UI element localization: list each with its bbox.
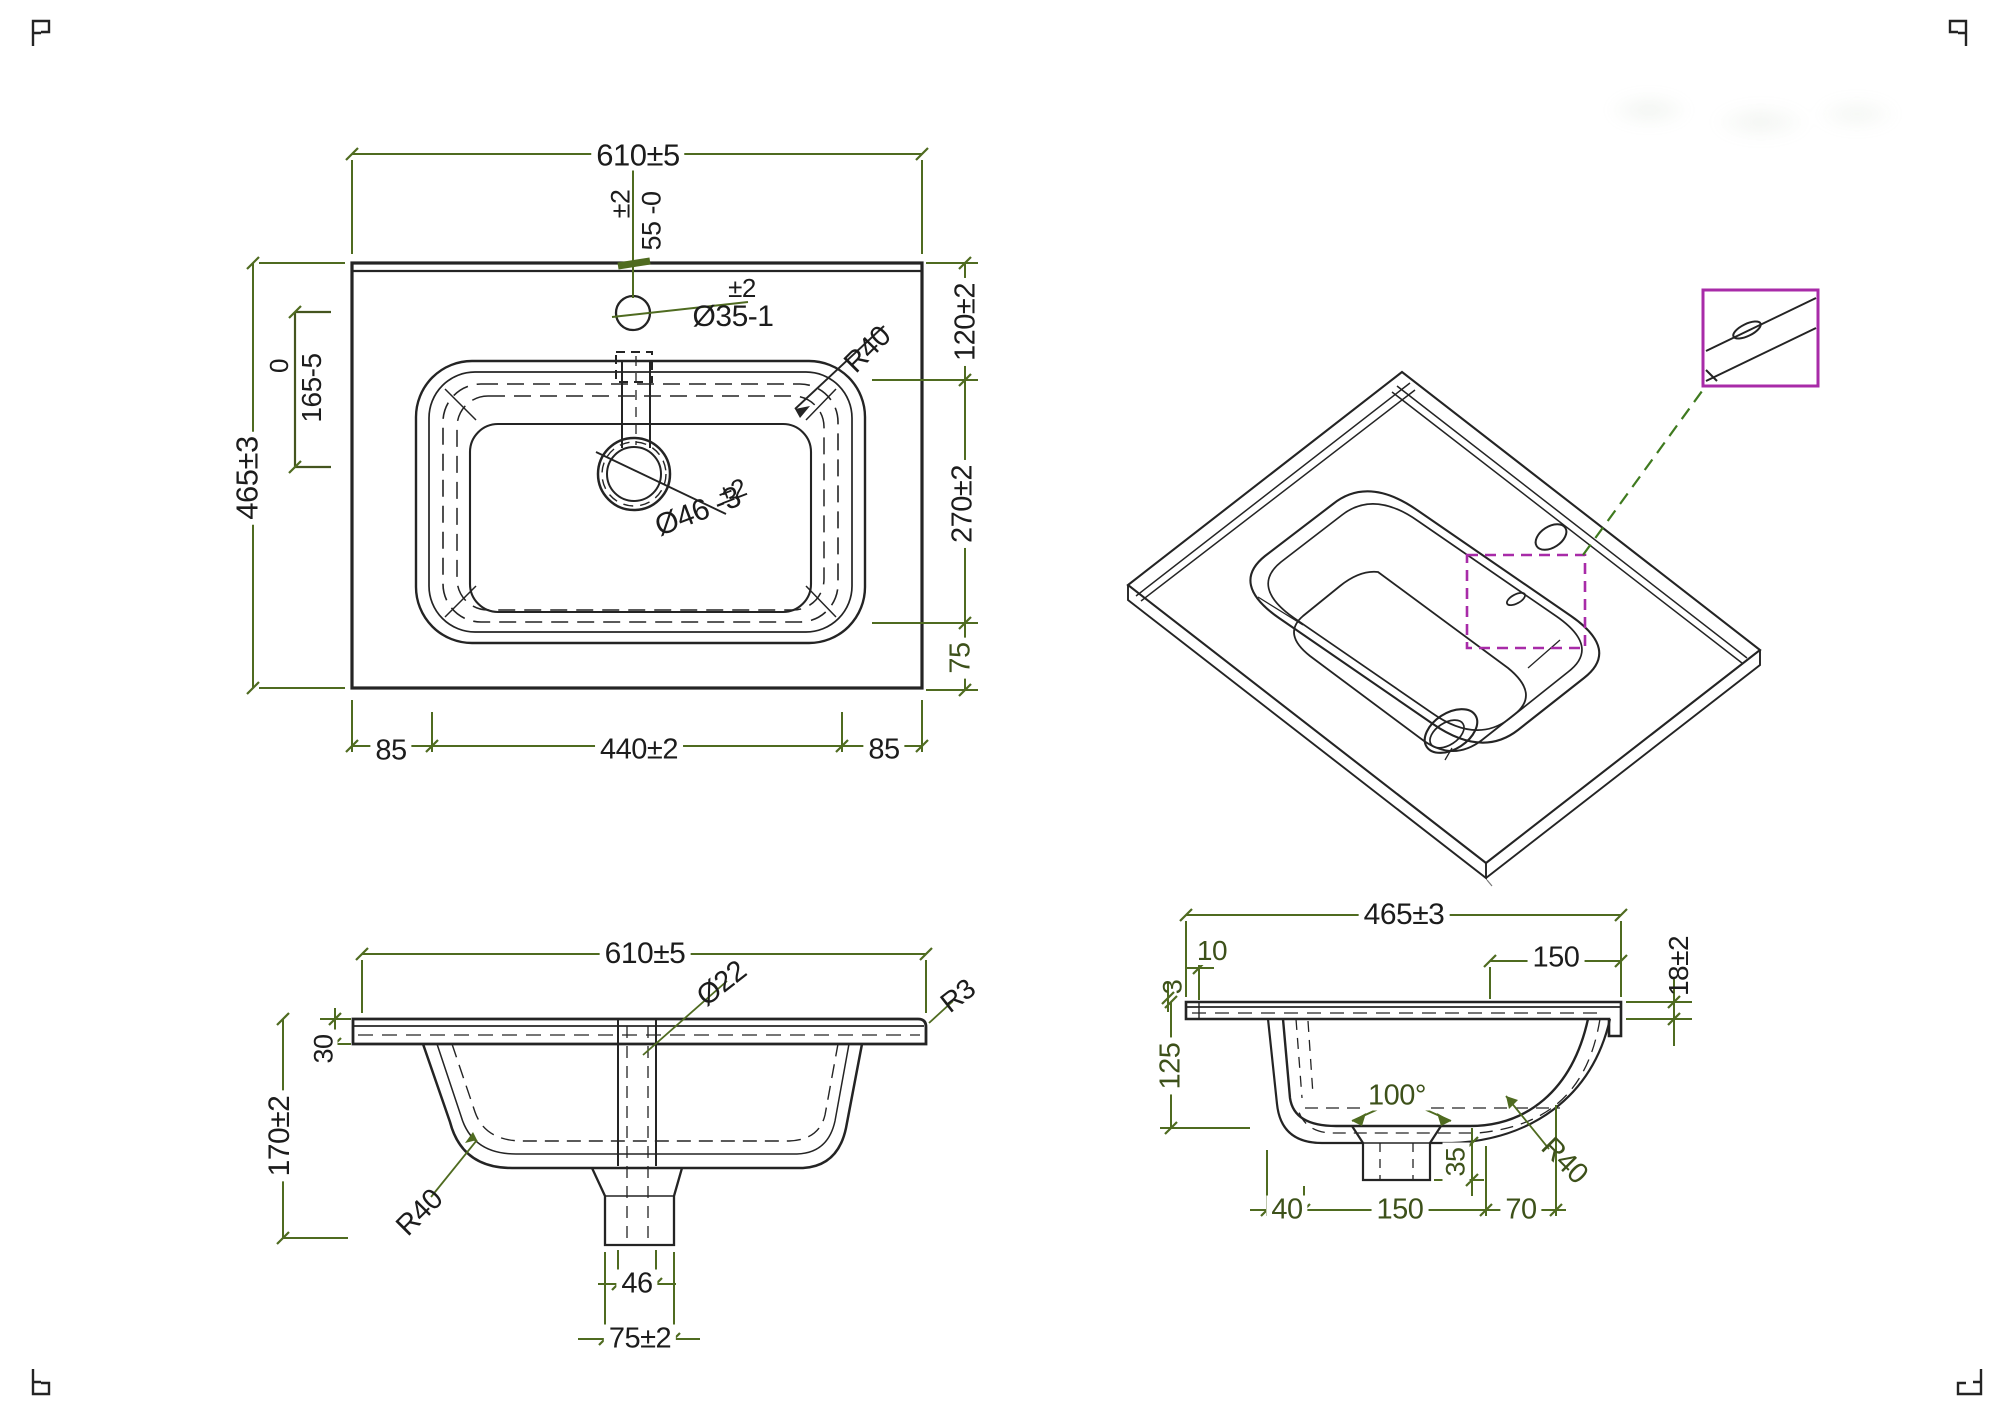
- plan-dim-height: 465±3: [232, 431, 263, 524]
- front-dim-height: 170±2: [265, 1091, 295, 1182]
- side-bottom-left-dim: 40: [1266, 1196, 1307, 1225]
- side-front-flat-dim: 150: [1528, 944, 1585, 973]
- plan-countertop-outline: [352, 263, 922, 688]
- front-dim-width: 610±5: [600, 939, 691, 969]
- plan-dim-width: 610±5: [591, 140, 684, 171]
- plan-dim-right-mid: 270±2: [949, 460, 978, 548]
- corner-marks: [33, 21, 1981, 1394]
- side-view-linework: [1160, 909, 1692, 1216]
- plan-basin-depth-label: 165-5: [298, 353, 326, 422]
- iso-overflow-slot: [1505, 590, 1527, 607]
- front-drain-inner-dim: 46: [616, 1270, 657, 1299]
- drawing-canvas: [0, 0, 1999, 1413]
- iso-countertop: [1128, 372, 1760, 863]
- plan-dim-right-top: 120±2: [952, 278, 981, 366]
- plan-dim-bottom-right: 85: [863, 736, 904, 765]
- detail-overflow-slot: [1731, 318, 1763, 342]
- plan-faucet-offset-tol: ±2: [608, 190, 635, 219]
- overflow-highlight-box: [1467, 555, 1585, 648]
- side-bottom-center-dim: 150: [1372, 1196, 1429, 1225]
- plan-dim-bottom-left: 85: [370, 737, 411, 766]
- side-dim-height: 125: [1157, 1038, 1186, 1095]
- plan-basin-depth-upper-tol: 0: [266, 359, 292, 373]
- side-lip-dim: 3: [1160, 980, 1187, 995]
- front-view-linework: [277, 948, 953, 1346]
- watermark: [1585, 78, 1905, 158]
- corner-mark-top-right: [1950, 21, 1966, 46]
- detail-box: [1703, 290, 1818, 386]
- plan-basin-rim-outer: [416, 361, 865, 643]
- side-basin-wall: [1283, 1019, 1588, 1126]
- plan-drain-hole: [598, 438, 670, 510]
- plan-basin-floor: [470, 424, 811, 612]
- plan-faucet-hole-tol: ±2: [728, 275, 756, 301]
- front-countertop: [353, 1019, 926, 1044]
- iso-view-linework: [1128, 290, 1818, 886]
- side-bottom-right-dim: 70: [1500, 1196, 1541, 1225]
- side-slab-thickness: 18±2: [1665, 936, 1693, 996]
- side-basin-angle: 100°: [1363, 1082, 1431, 1111]
- detail-leader-line: [1583, 387, 1705, 555]
- front-slab-thickness: 30: [311, 1029, 338, 1068]
- front-r40-leader: [431, 1140, 477, 1197]
- plan-view-linework: [247, 148, 978, 752]
- plan-faucet-offset: 55 -0: [639, 191, 666, 250]
- iso-basin-floor: [1294, 572, 1526, 751]
- plan-dim-right-bottom: 75: [947, 637, 976, 678]
- technical-drawing-sheet: 610±5 ±2 55 -0 ±2 Ø35-1 R40 465±3 0 165-…: [0, 0, 1999, 1413]
- front-drain-outer-dim: 75±2: [604, 1325, 676, 1354]
- plan-dim-bottom-center: 440±2: [595, 736, 683, 765]
- plan-faucet-hole-label: Ø35-1: [693, 302, 774, 332]
- corner-mark-bottom-left: [33, 1369, 49, 1394]
- side-drain-boss: [1352, 1126, 1441, 1180]
- side-boss-height-dim: 35: [1443, 1142, 1470, 1181]
- corner-mark-top-left: [33, 21, 49, 46]
- corner-mark-bottom-right: [1958, 1369, 1981, 1394]
- iso-faucet-hole: [1531, 519, 1571, 555]
- side-dim-depth: 465±3: [1359, 900, 1450, 930]
- side-back-gap-dim: 10: [1192, 937, 1232, 965]
- front-drain-boss: [592, 1168, 682, 1245]
